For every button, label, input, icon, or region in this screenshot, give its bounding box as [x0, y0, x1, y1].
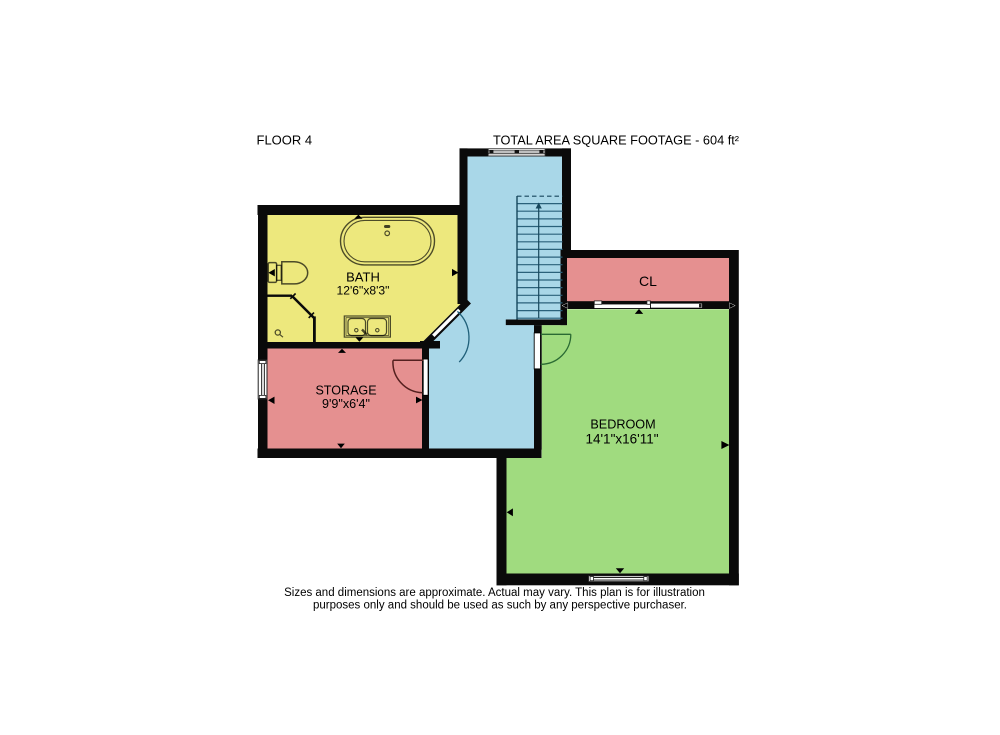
- svg-text:BATH: BATH: [346, 270, 380, 285]
- svg-text:TOTAL AREA SQUARE FOOTAGE - 60: TOTAL AREA SQUARE FOOTAGE - 604 ft²: [493, 133, 739, 148]
- svg-text:Sizes and dimensions are appro: Sizes and dimensions are approximate. Ac…: [284, 587, 705, 599]
- svg-text:STORAGE: STORAGE: [315, 383, 376, 397]
- svg-text:9'9"x6'4": 9'9"x6'4": [322, 397, 370, 411]
- svg-text:12'6"x8'3": 12'6"x8'3": [337, 284, 390, 298]
- svg-text:FLOOR 4: FLOOR 4: [257, 133, 313, 148]
- svg-text:14'1"x16'11": 14'1"x16'11": [585, 432, 658, 447]
- svg-text:CL: CL: [639, 273, 657, 289]
- svg-text:purposes only and should be us: purposes only and should be used as such…: [313, 600, 687, 612]
- svg-text:BEDROOM: BEDROOM: [590, 418, 655, 432]
